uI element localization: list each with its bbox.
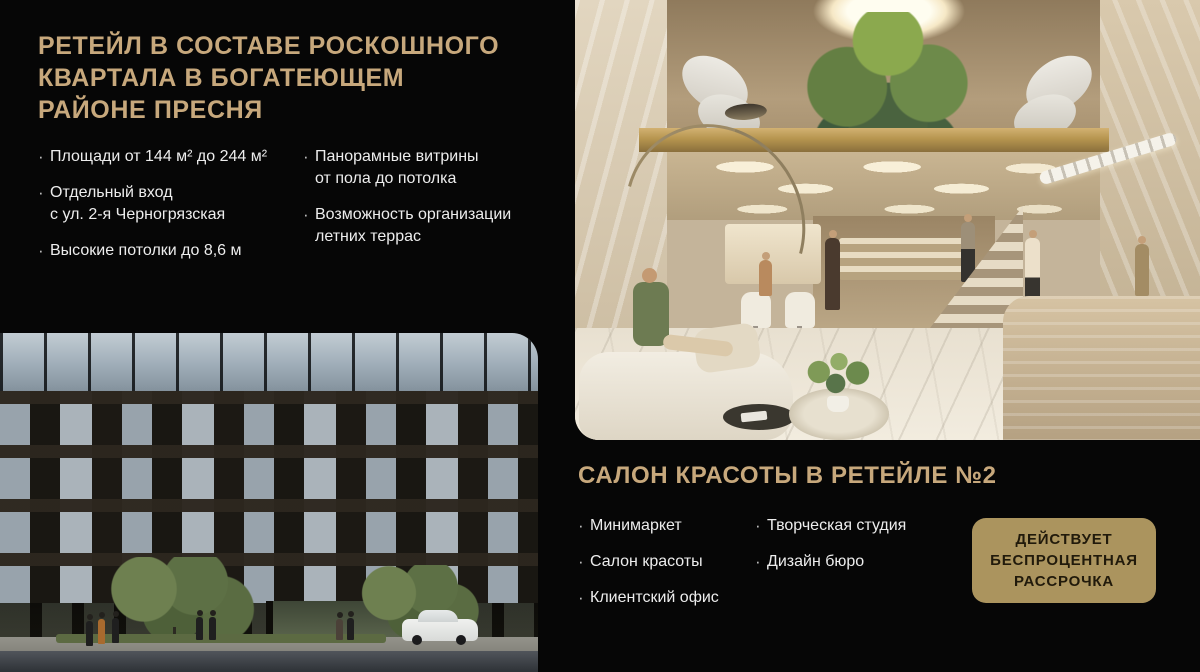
- feature-text: Высокие потолки до 8,6 м: [50, 240, 242, 262]
- bullet-marker: ·: [578, 515, 590, 537]
- bullet-marker: ·: [38, 146, 50, 168]
- magazine-tray: [723, 404, 795, 430]
- feature-item: · Отдельный вход с ул. 2-я Черногрязская: [38, 182, 303, 226]
- receptionist-figure: [1135, 244, 1149, 296]
- street-tree: [96, 557, 256, 641]
- building-glass-top-band: [0, 333, 538, 391]
- woman-on-sofa-figure: [633, 282, 669, 346]
- salon-section: САЛОН КРАСОТЫ В РЕТЕЙЛЕ №2 · Минимаркет …: [578, 461, 1200, 491]
- tenant-text: Творческая студия: [767, 515, 906, 537]
- presentation-slide: РЕТЕЙЛ В СОСТАВЕ РОСКОШНОГО КВАРТАЛА В Б…: [0, 0, 1200, 672]
- retail-title: РЕТЕЙЛ В СОСТАВЕ РОСКОШНОГО КВАРТАЛА В Б…: [38, 30, 568, 126]
- pedestrian: [196, 617, 203, 640]
- pedestrian: [112, 618, 119, 643]
- reception-desk: [1003, 296, 1200, 440]
- bullet-marker: ·: [755, 515, 767, 537]
- installment-badge: ДЕЙСТВУЕТ БЕСПРОЦЕНТНАЯ РАССРОЧКА: [972, 518, 1156, 603]
- bullet-marker: ·: [38, 240, 50, 262]
- tenant-item: · Клиентский офис: [578, 587, 755, 609]
- retail-section: РЕТЕЙЛ В СОСТАВЕ РОСКОШНОГО КВАРТАЛА В Б…: [38, 30, 568, 126]
- tenant-text: Салон красоты: [590, 551, 703, 573]
- feature-item: · Площади от 144 м² до 244 м²: [38, 146, 303, 168]
- salon-tenants-col2: · Творческая студия · Дизайн бюро: [755, 515, 978, 623]
- feature-text: Площади от 144 м² до 244 м²: [50, 146, 267, 168]
- tenant-item: · Творческая студия: [755, 515, 978, 537]
- building-exterior-photo: [0, 333, 538, 672]
- bullet-marker: ·: [303, 204, 315, 248]
- tenant-text: Клиентский офис: [590, 587, 719, 609]
- tenant-item: · Салон красоты: [578, 551, 755, 573]
- salon-chair: [785, 292, 815, 328]
- tenant-text: Минимаркет: [590, 515, 682, 537]
- bullet-marker: ·: [578, 587, 590, 609]
- tenant-text: Дизайн бюро: [767, 551, 864, 573]
- feature-item: · Высокие потолки до 8,6 м: [38, 240, 303, 262]
- bullet-marker: ·: [38, 182, 50, 226]
- salon-title: САЛОН КРАСОТЫ В РЕТЕЙЛЕ №2: [578, 461, 1200, 491]
- feature-text: Панорамные витрины от пола до потолка: [315, 146, 479, 190]
- pedestrian: [98, 619, 105, 644]
- table-plant: [797, 346, 881, 398]
- bullet-marker: ·: [303, 146, 315, 190]
- bullet-marker: ·: [755, 551, 767, 573]
- retail-features: · Площади от 144 м² до 244 м² · Отдельны…: [38, 146, 568, 276]
- white-car: [402, 619, 478, 641]
- salon-interior-photo: [575, 0, 1200, 440]
- product-shelf: [839, 238, 969, 280]
- retail-features-col2: · Панорамные витрины от пола до потолка …: [303, 146, 568, 276]
- pedestrian: [347, 618, 354, 640]
- feature-item: · Панорамные витрины от пола до потолка: [303, 146, 568, 190]
- tenant-item: · Минимаркет: [578, 515, 755, 537]
- feature-text: Возможность организации летних террас: [315, 204, 511, 248]
- salon-tenants: · Минимаркет · Салон красоты · Клиентски…: [578, 515, 978, 623]
- feature-text: Отдельный вход с ул. 2-я Черногрязская: [50, 182, 225, 226]
- bullet-marker: ·: [578, 551, 590, 573]
- pedestrian: [336, 619, 343, 640]
- stylist-figure: [825, 238, 840, 310]
- feature-item: · Возможность организации летних террас: [303, 204, 568, 248]
- road: [0, 651, 538, 672]
- salon-tenants-col1: · Минимаркет · Салон красоты · Клиентски…: [578, 515, 755, 623]
- retail-features-col1: · Площади от 144 м² до 244 м² · Отдельны…: [38, 146, 303, 276]
- pedestrian: [86, 621, 93, 646]
- tenant-item: · Дизайн бюро: [755, 551, 978, 573]
- pedestrian: [209, 617, 216, 640]
